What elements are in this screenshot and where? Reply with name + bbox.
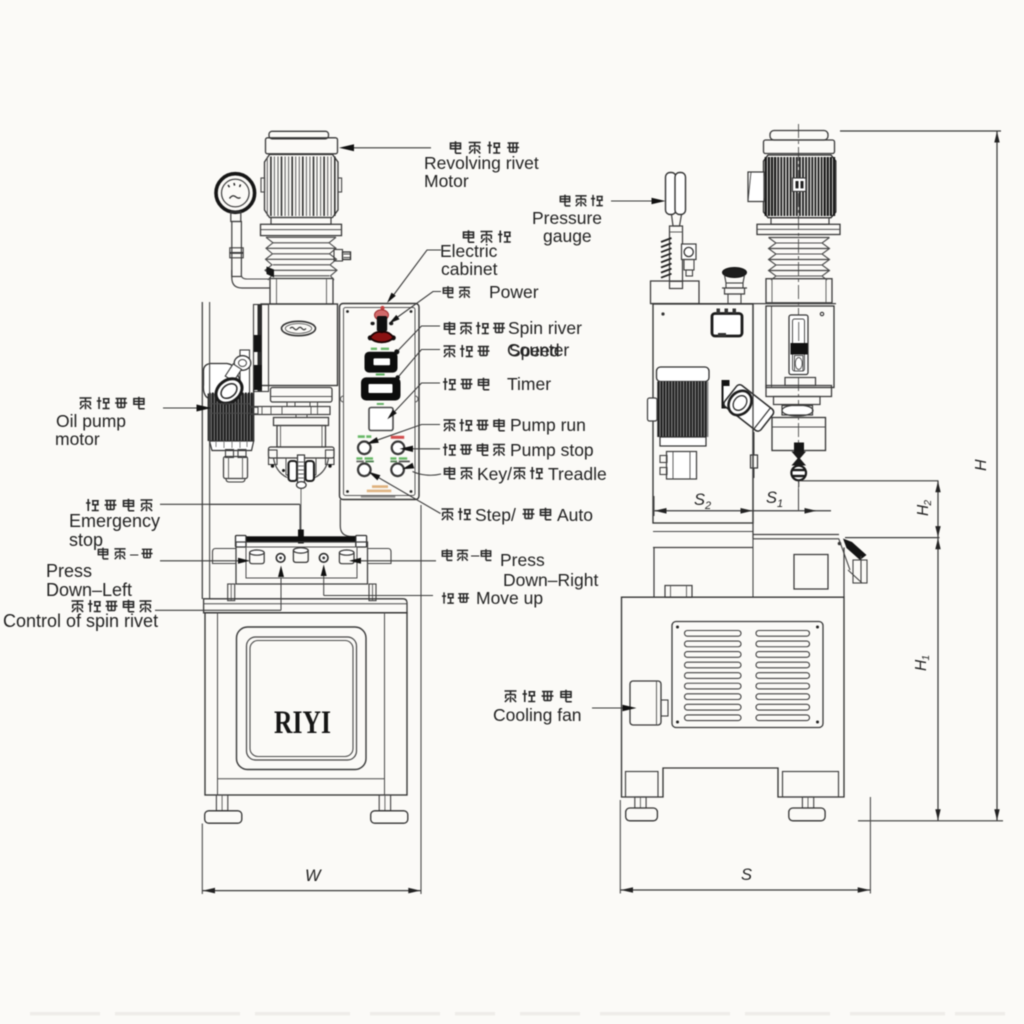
svg-text:W: W	[305, 867, 322, 885]
svg-text:1: 1	[777, 498, 783, 510]
svg-text:stop: stop	[69, 530, 103, 550]
svg-text:Pressure: Pressure	[532, 208, 602, 228]
svg-text:2: 2	[704, 500, 711, 512]
svg-text:Step/: Step/	[475, 505, 516, 525]
svg-text:Cooling fan: Cooling fan	[493, 705, 582, 725]
svg-text:S: S	[694, 491, 705, 509]
svg-text:Down–Right: Down–Right	[503, 570, 598, 590]
svg-text:Press: Press	[500, 550, 545, 570]
svg-text:Treadle: Treadle	[548, 464, 607, 484]
svg-text:Press: Press	[46, 561, 92, 581]
svg-text:RIYI: RIYI	[274, 705, 331, 741]
svg-text:S: S	[741, 866, 752, 884]
svg-text:Control of spin rivet: Control of spin rivet	[3, 611, 158, 631]
svg-text:2: 2	[923, 500, 934, 507]
svg-text:Pump stop: Pump stop	[510, 440, 594, 460]
svg-text:Move up: Move up	[476, 588, 543, 608]
svg-text:cabinet: cabinet	[441, 259, 498, 279]
svg-text:Revolving rivet: Revolving rivet	[424, 153, 539, 173]
svg-text:Key/: Key/	[477, 464, 512, 484]
svg-text:Auto: Auto	[557, 505, 593, 525]
svg-text:gauge: gauge	[543, 226, 592, 246]
svg-text:Pump run: Pump run	[510, 415, 586, 435]
svg-text:H: H	[973, 459, 990, 471]
svg-text:Spin river: Spin river	[508, 318, 582, 338]
svg-text:Electric: Electric	[440, 241, 498, 261]
svg-text:1: 1	[921, 655, 932, 661]
svg-text:Motor: Motor	[424, 171, 469, 191]
svg-text:–: –	[471, 547, 480, 564]
svg-text:Counter: Counter	[507, 340, 569, 360]
svg-text:Oil pump: Oil pump	[56, 411, 126, 431]
svg-text:Power: Power	[489, 282, 539, 302]
svg-text:Timer: Timer	[507, 374, 551, 394]
svg-text:S: S	[766, 489, 777, 507]
svg-text:–: –	[130, 546, 139, 563]
svg-text:Emergency: Emergency	[69, 511, 160, 531]
svg-text:motor: motor	[55, 429, 100, 449]
svg-text:Down–Left: Down–Left	[46, 580, 132, 600]
